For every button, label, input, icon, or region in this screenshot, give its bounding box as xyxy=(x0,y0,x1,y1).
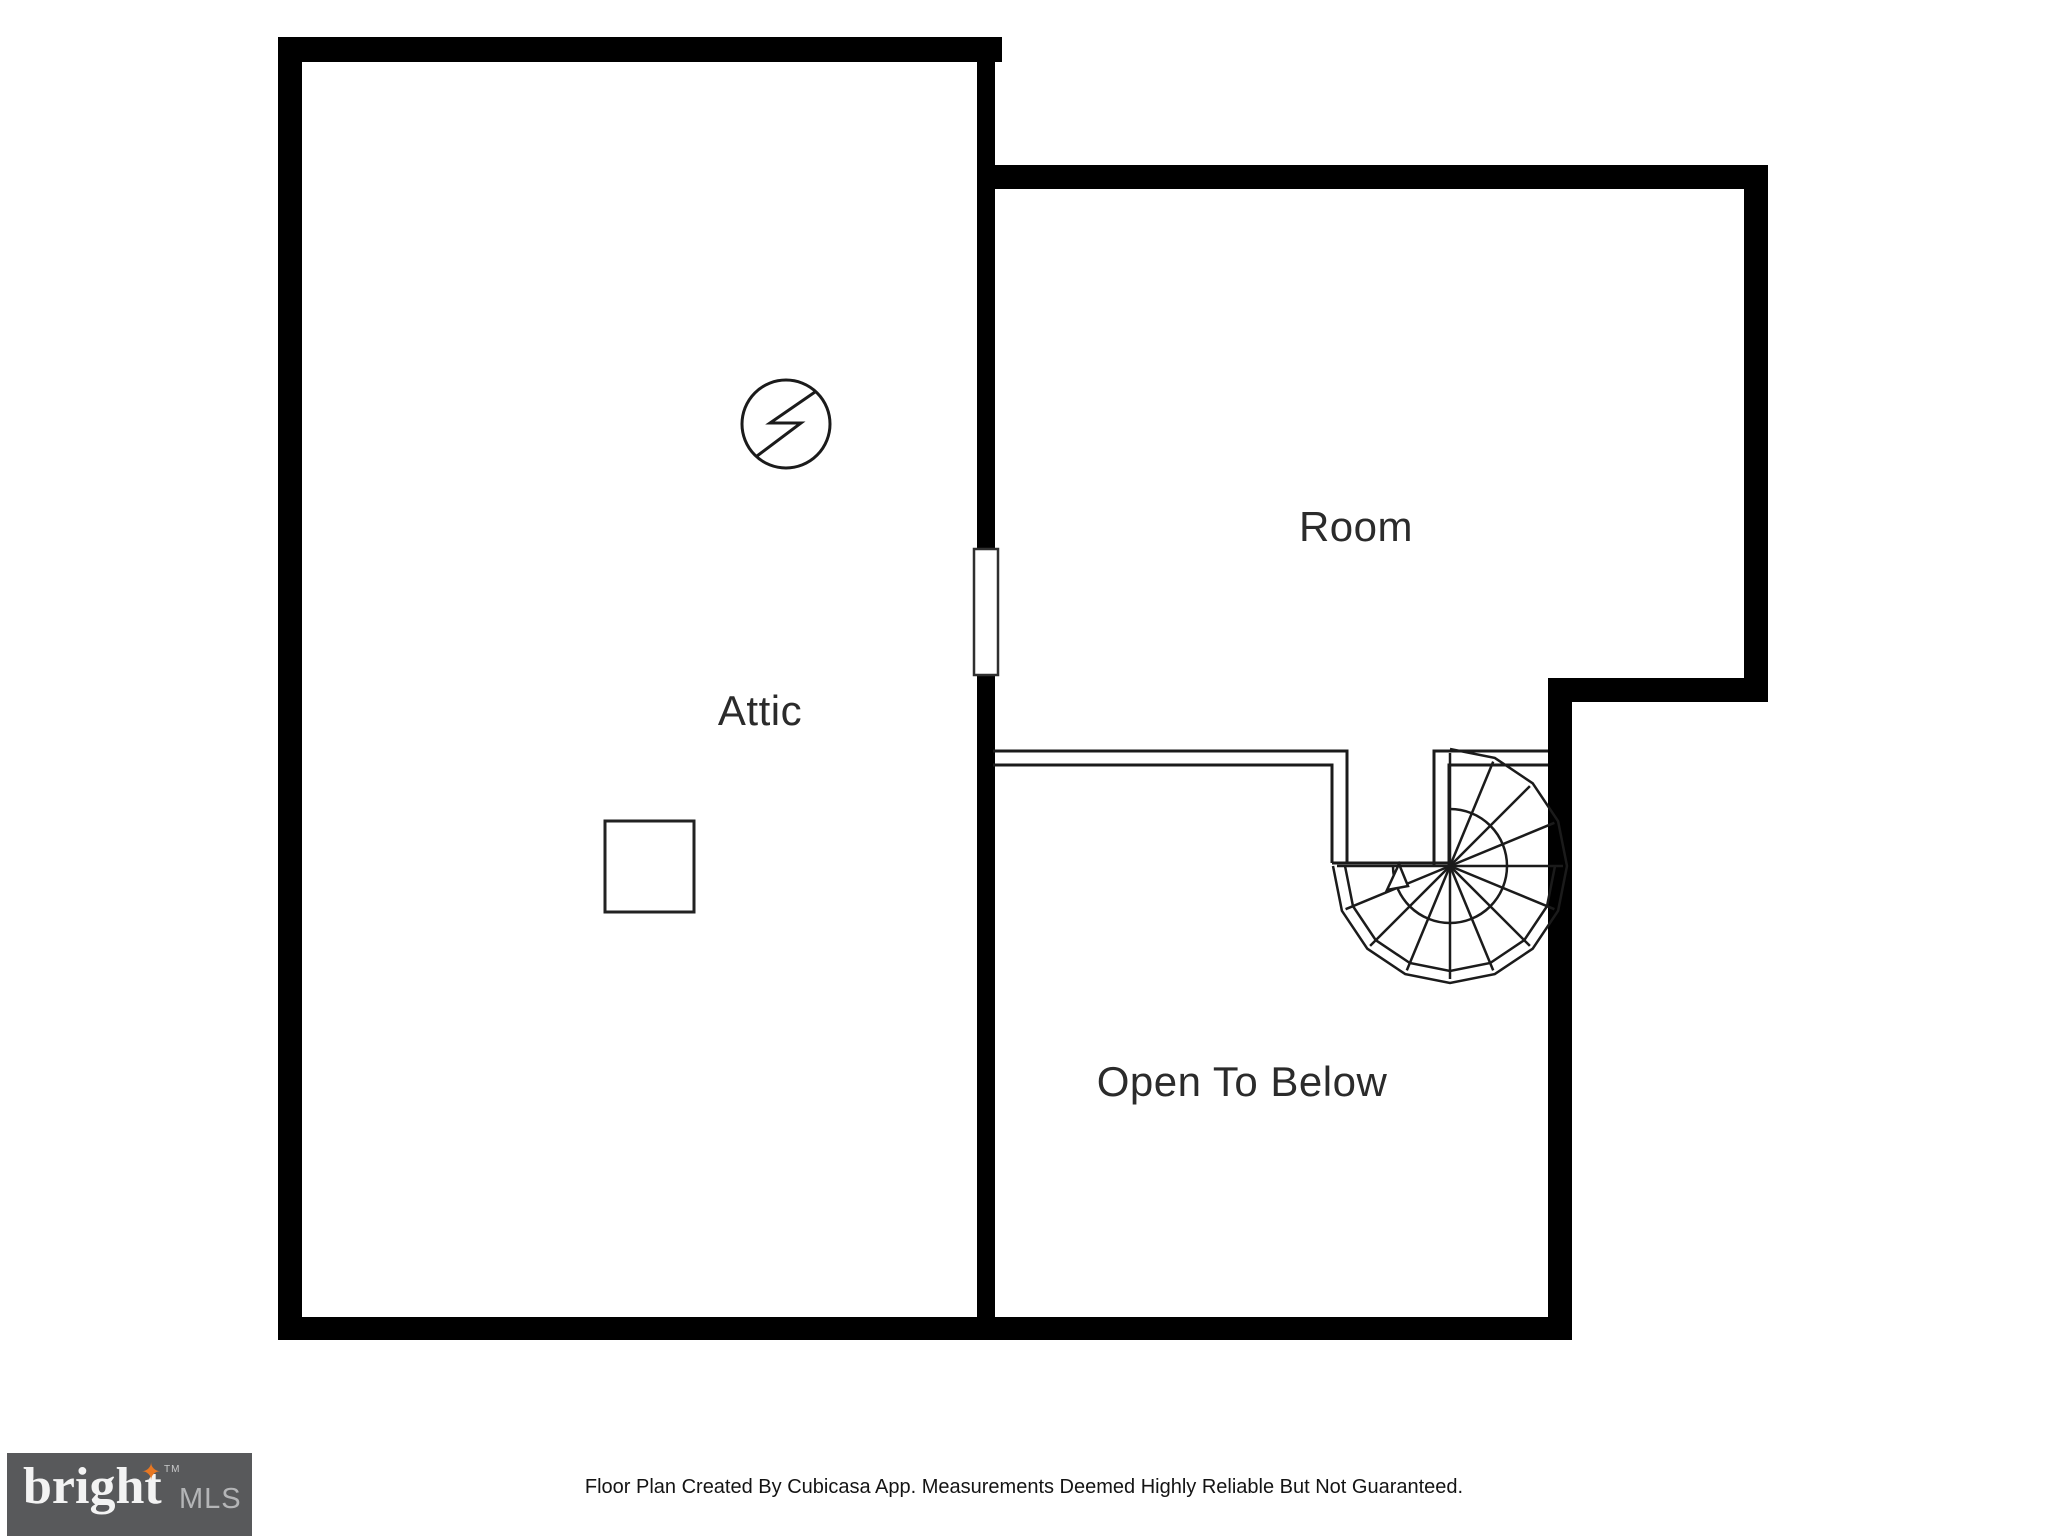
wall xyxy=(278,37,1002,62)
logo-mls-text: MLS xyxy=(179,1485,242,1514)
wall xyxy=(977,37,995,550)
access-square-icon xyxy=(605,821,694,912)
wall xyxy=(1744,165,1768,702)
stairwell-railing xyxy=(993,751,1548,866)
brightmls-logo: bright ✦ TM MLS xyxy=(7,1453,252,1536)
wall xyxy=(1548,678,1572,1340)
room-label-open-to-below: Open To Below xyxy=(1097,1058,1388,1106)
wall xyxy=(977,674,995,1317)
logo-trademark: TM xyxy=(164,1465,180,1475)
wall xyxy=(278,1317,1572,1340)
room-label-room: Room xyxy=(1299,503,1413,551)
wall xyxy=(1548,678,1768,702)
sparkle-icon: ✦ xyxy=(141,1461,161,1485)
walls xyxy=(278,37,1768,1340)
spiral-staircase-icon xyxy=(1333,749,1567,983)
electrical-symbol-icon xyxy=(742,380,830,468)
floor-plan-drawing xyxy=(0,0,2048,1536)
door-opening-icon xyxy=(974,549,998,675)
wall xyxy=(995,165,1768,189)
wall xyxy=(278,37,302,1340)
room-label-attic: Attic xyxy=(718,687,802,735)
footer-disclaimer: Floor Plan Created By Cubicasa App. Meas… xyxy=(0,1476,2048,1499)
stair-direction-arrow-icon xyxy=(1387,864,1408,890)
